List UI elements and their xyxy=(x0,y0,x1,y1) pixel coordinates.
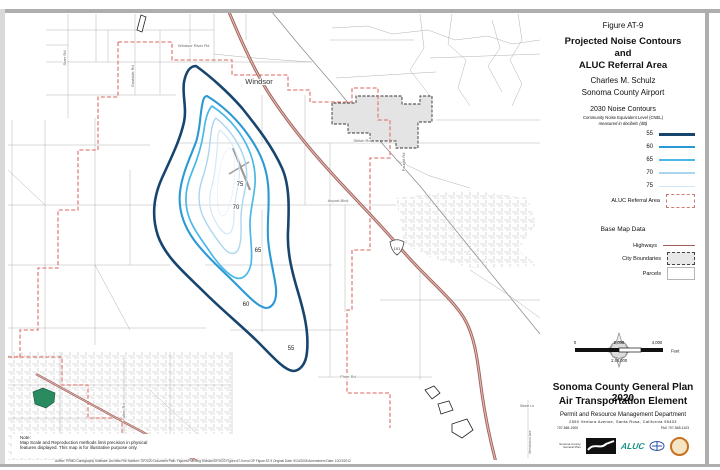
legend-label-parcels: Parcels xyxy=(643,271,661,277)
legend-swatch-65 xyxy=(659,159,695,161)
page-border-top xyxy=(0,9,720,13)
noise-legend-title: 2030 Noise Contours xyxy=(541,106,705,113)
contour-label-60: 60 xyxy=(243,302,250,308)
map-title-line3: ALUC Referral Area xyxy=(541,60,705,71)
legend-row-parcels: Parcels xyxy=(551,267,695,280)
sonoma-county-logo xyxy=(586,438,616,454)
legend-swatch-aluc-area xyxy=(666,194,695,208)
legend-swatch-70 xyxy=(659,172,695,174)
agency-logos-row: Sonoma County General Plan ALUC xyxy=(549,432,697,460)
legend-label-65: 65 xyxy=(646,157,653,163)
note-line-2: features displayed. This map is for illu… xyxy=(20,445,414,450)
city-boundary-polygon xyxy=(332,96,432,148)
page-border-left xyxy=(0,9,5,467)
road-label-steele-ln: Steele Ln xyxy=(520,404,534,408)
legend-row-75: 75 xyxy=(551,180,695,192)
road-label-shiloh-rd: Shiloh Rd xyxy=(353,138,370,143)
county-logo-caption: Sonoma County General Plan xyxy=(557,443,581,450)
noise-contour-75 xyxy=(210,130,240,234)
road-label-fulton-rd: Fulton Rd xyxy=(121,403,126,420)
legend-label-aluc: ALUC Referral Area xyxy=(611,198,660,204)
legend-swatch-highway xyxy=(663,245,695,247)
legend-row-55: 55 xyxy=(551,128,695,140)
road-label-piner-rd: Piner Rd xyxy=(340,374,356,379)
fax-number: FAX 707-565-1103 xyxy=(661,426,689,430)
highway-shield-101: 101 xyxy=(390,240,404,255)
legend-row-60: 60 xyxy=(551,141,695,153)
figure-label: Figure AT-9 xyxy=(541,21,705,30)
road-label-starr-rd: Starr Rd xyxy=(62,51,67,66)
contour-label-65: 65 xyxy=(255,248,262,254)
page-border-bottom xyxy=(0,464,720,467)
scale-zero: 0 xyxy=(574,340,577,345)
contour-label-70: 70 xyxy=(233,205,240,211)
county-logo-swoosh-icon xyxy=(588,441,614,450)
map-title-line1: Projected Noise Contours xyxy=(541,36,705,47)
road-label-mendocino-ave: Mendocino Ave xyxy=(528,430,532,453)
scale-ratio: 1:48,000 xyxy=(611,358,628,363)
legend-row-highways: Highways xyxy=(551,239,695,252)
legend-swatch-parcel xyxy=(667,267,695,280)
legend-label-55: 55 xyxy=(646,131,653,137)
legend-label-70: 70 xyxy=(646,170,653,176)
map-note-box: Note: Map Scale and Reproduction methods… xyxy=(12,434,414,458)
contour-label-75: 75 xyxy=(237,182,244,188)
noise-contour-60 xyxy=(180,96,277,308)
transportation-agency-logo-icon xyxy=(649,438,665,454)
fine-print: Author: PRMD Cartography Software: ArcVi… xyxy=(55,459,537,463)
road-label-faught-rd: Faught Rd xyxy=(401,153,406,172)
map-title-line2: and xyxy=(541,48,705,59)
highway-shield-number: 101 xyxy=(394,246,401,251)
department-name: Permit and Resource Management Departmen… xyxy=(541,412,705,418)
phone-number: 707-565-1900 xyxy=(557,426,578,430)
noise-legend-subtitle1: Community Noise Equivalent Level (CNEL) xyxy=(541,115,705,120)
legend-row-70: 70 xyxy=(551,167,695,179)
legend-row-65: 65 xyxy=(551,154,695,166)
legend-swatch-60 xyxy=(659,146,695,149)
legend-label-75: 75 xyxy=(646,183,653,189)
legend-label-60: 60 xyxy=(646,144,653,150)
legend-row-city-boundaries: City Boundaries xyxy=(551,252,695,265)
noise-contour-55 xyxy=(154,66,307,371)
scalebar-block: 0 2,000 4,000 Feet 1:48,000 xyxy=(557,331,687,377)
legend-row-aluc: ALUC Referral Area xyxy=(551,193,695,209)
scale-max: 4,000 xyxy=(652,340,663,345)
road-label-eastside-rd: Eastside Rd xyxy=(130,65,135,87)
contact-row: 707-565-1900 FAX 707-565-1103 xyxy=(557,426,689,430)
county-seal-icon xyxy=(670,437,689,456)
road-label-windsor-river-rd: Windsor River Rd xyxy=(178,43,209,48)
base-map-legend-title: Base Map Data xyxy=(541,226,705,233)
scale-bar xyxy=(575,348,663,352)
scale-unit: Feet xyxy=(671,349,680,354)
legend-swatch-city-boundary xyxy=(667,252,695,265)
title-legend-panel: Figure AT-9 Projected Noise Contours and… xyxy=(541,13,705,464)
legend-swatch-55 xyxy=(659,133,695,136)
airport-name-line1: Charles M. Schulz xyxy=(541,76,705,85)
city-label-windsor: Windsor xyxy=(245,77,273,86)
page-border-right xyxy=(705,9,709,467)
legend-label-city-boundaries: City Boundaries xyxy=(622,256,661,262)
road-label-airport-blvd: Airport Blvd xyxy=(328,198,349,203)
legend-swatch-75 xyxy=(659,186,695,187)
legend-label-highways: Highways xyxy=(633,243,657,249)
noise-legend-subtitle2: measured in decibels (dB) xyxy=(541,121,705,126)
aluc-logo: ALUC xyxy=(620,441,645,451)
department-address: 2550 Ventura Avenue, Santa Rosa, Califor… xyxy=(541,420,705,424)
contour-label-55: 55 xyxy=(288,346,295,352)
airport-name-line2: Sonoma County Airport xyxy=(541,88,705,97)
element-title: Air Transportation Element xyxy=(541,396,705,407)
map-figure-page: 75 70 65 60 55 Windsor Windsor River Rd … xyxy=(0,0,720,470)
scale-mid: 2,000 xyxy=(614,340,625,345)
